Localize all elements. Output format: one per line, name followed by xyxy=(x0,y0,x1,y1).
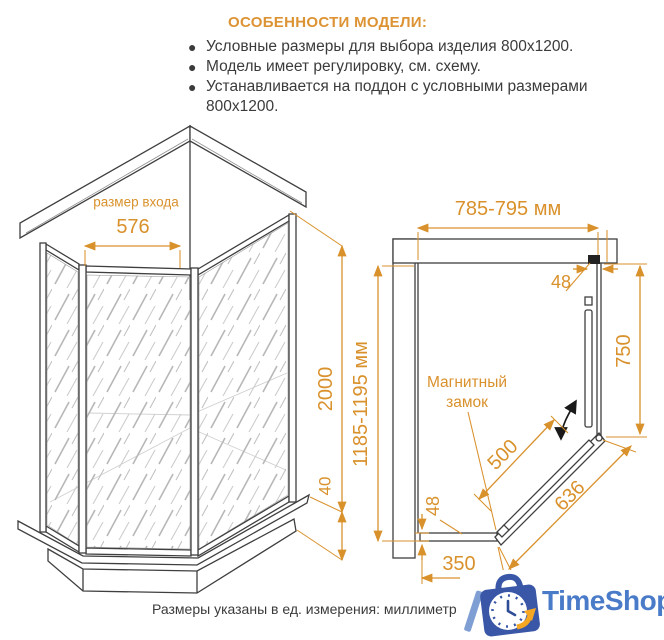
magnet-lock-label: Магнитный замок xyxy=(427,373,507,413)
dim-width-range: 785-795 мм xyxy=(455,199,561,219)
technical-drawing xyxy=(0,0,664,640)
dim-profile-top: 48 xyxy=(551,273,571,291)
timeshop-logo-text: TimeShop xyxy=(542,585,664,617)
product-diagram-page: ОСОБЕННОСТИ МОДЕЛИ: ● Условные размеры д… xyxy=(0,0,664,640)
dim-tray-height: 40 xyxy=(317,477,334,496)
plan-view xyxy=(378,228,647,584)
iso-view xyxy=(18,126,342,593)
timeshop-logo: TimeShop xyxy=(460,570,664,640)
units-note: Размеры указаны в ед. измерения: миллиме… xyxy=(152,601,457,617)
dim-depth-range: 1185-1195 мм xyxy=(351,341,371,467)
dim-entry-width: 576 xyxy=(116,217,149,237)
dim-height: 2000 xyxy=(316,367,336,412)
entry-size-label: размер входа xyxy=(93,195,178,209)
dim-side-panel: 750 xyxy=(614,334,634,367)
dim-profile-bottom: 48 xyxy=(424,496,442,516)
